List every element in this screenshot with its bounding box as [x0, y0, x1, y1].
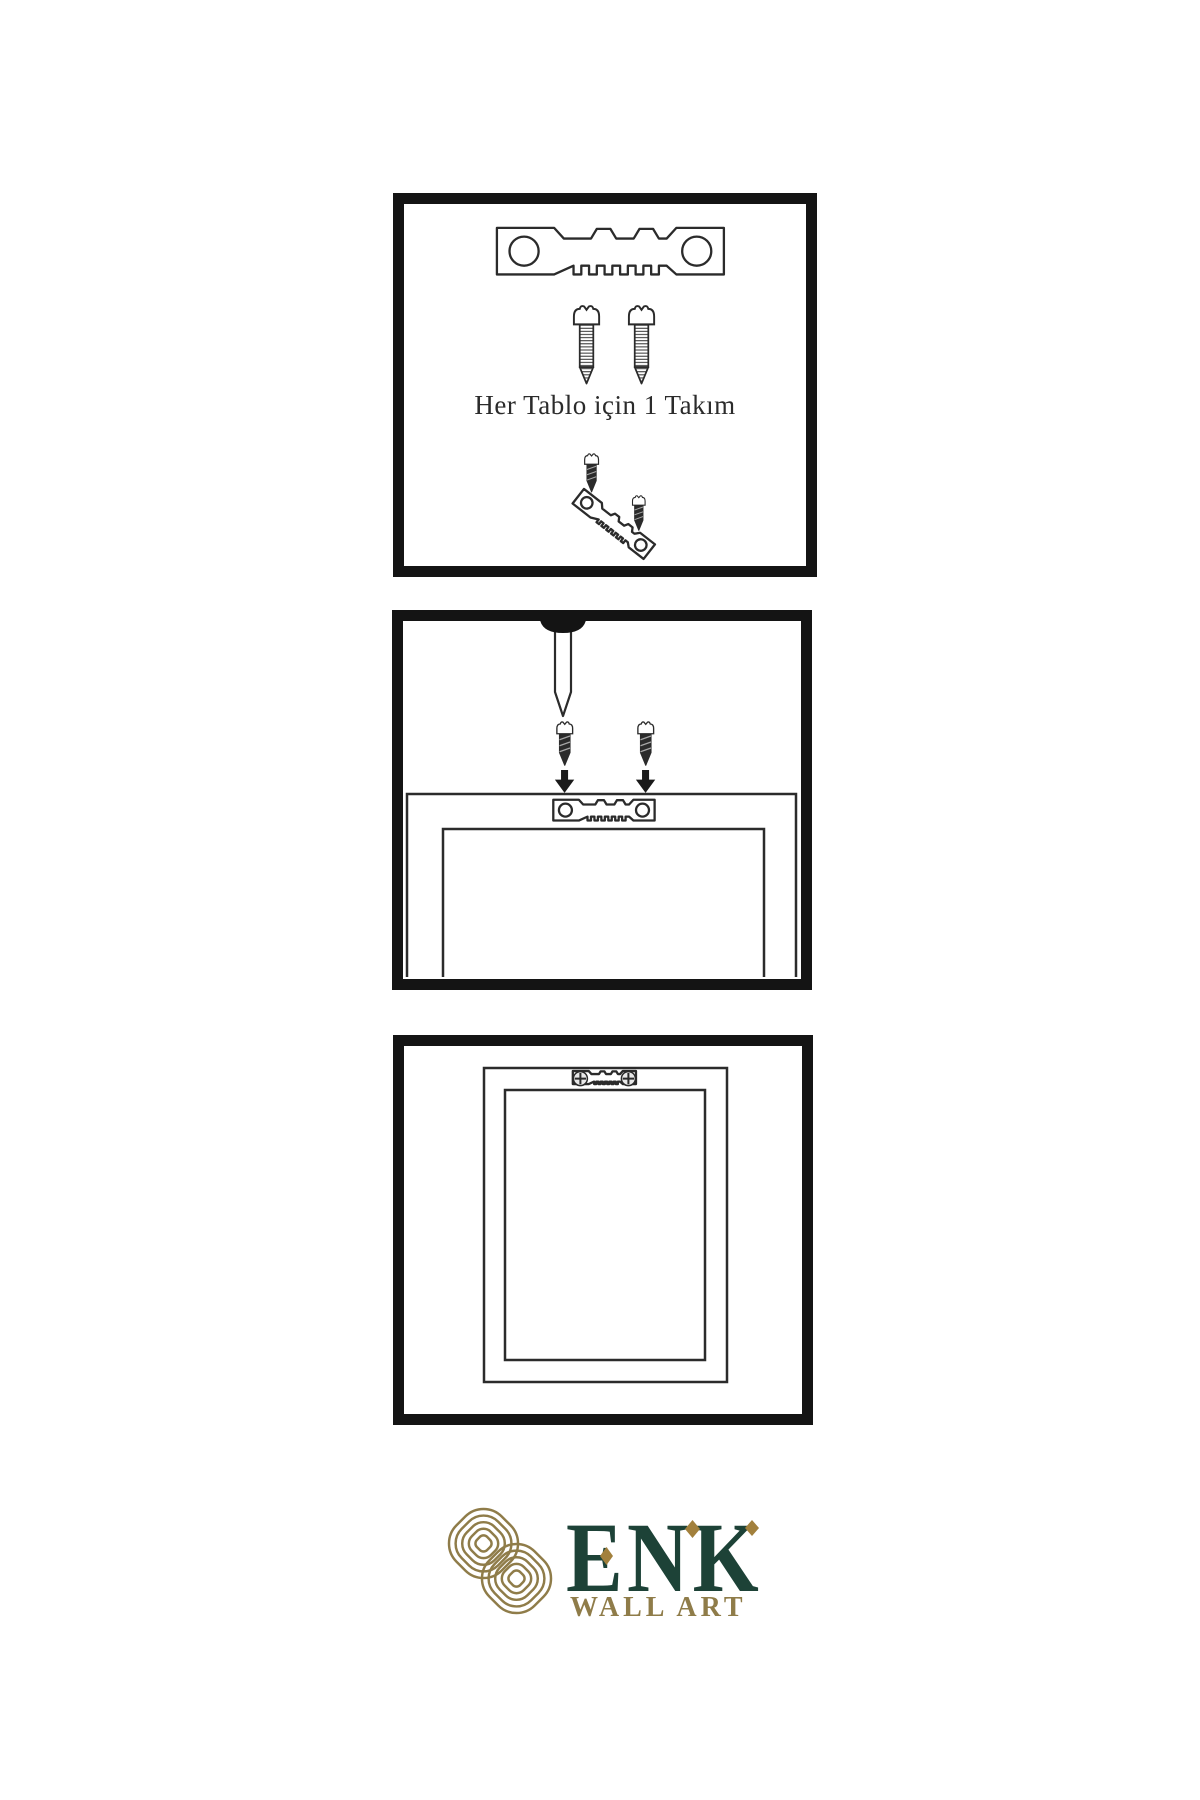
down-arrow-icon: [636, 770, 655, 793]
sawtooth-hanger-icon: [553, 800, 654, 821]
screw-icon: [574, 306, 599, 384]
nail-icon: [540, 621, 586, 716]
screw-dark-icon: [557, 722, 573, 765]
instruction-sheet: Her Tablo için 1 Takım: [0, 0, 1200, 1800]
picture-frame-outer: [484, 1068, 727, 1382]
kit-caption: Her Tablo için 1 Takım: [404, 390, 806, 421]
screw-dark-icon: [585, 454, 599, 492]
screw-dark-icon: [633, 496, 646, 531]
crosshead-screw-icon: [621, 1072, 635, 1086]
panel-installed-step: [393, 1035, 813, 1425]
panel-mounting-step: [392, 610, 812, 990]
crosshead-screw-icon: [573, 1072, 587, 1086]
screw-dark-icon: [638, 722, 654, 765]
installed-step-illustration: [404, 1046, 800, 1412]
mounting-step-illustration: [403, 621, 799, 977]
knot-emblem-icon: [438, 1494, 562, 1628]
screw-icon: [629, 306, 654, 384]
brand-subtitle: WALL ART: [570, 1592, 747, 1624]
panel-hardware-kit: Her Tablo için 1 Takım: [393, 193, 817, 577]
down-arrow-icon: [555, 770, 574, 793]
sawtooth-hanger-icon: [497, 228, 724, 275]
hardware-kit-illustration: [404, 204, 804, 564]
